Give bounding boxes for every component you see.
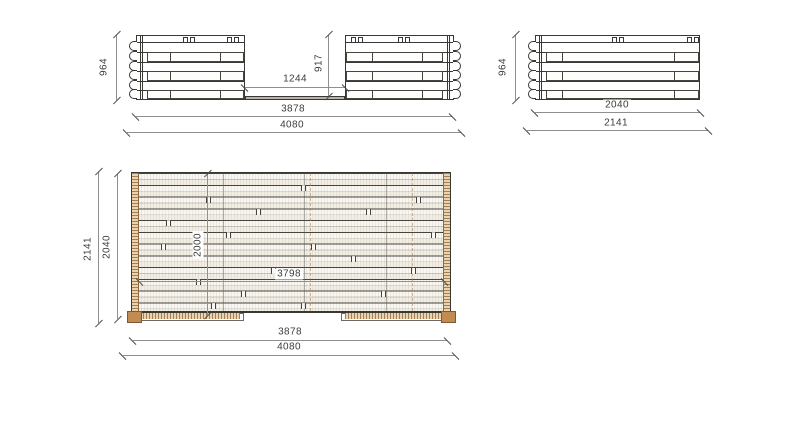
log-course-line	[346, 81, 453, 82]
log-end-scallop	[453, 51, 461, 61]
log-course-line	[137, 62, 244, 63]
rafter-dashed-line	[310, 173, 311, 311]
corner-post-line	[539, 36, 542, 99]
panel-joint-line	[220, 72, 221, 80]
board-stagger-joint	[241, 291, 246, 297]
dimension-line-shell-depth	[535, 112, 700, 113]
board-stagger-joint	[411, 268, 416, 274]
dimension-label: 4080	[275, 342, 303, 353]
log-panel	[546, 90, 699, 99]
top-notch	[227, 37, 232, 43]
top-notch	[183, 37, 188, 43]
dimension-line-inner-width	[140, 281, 444, 282]
panel-joint-line	[220, 91, 221, 98]
roof-boards	[138, 173, 444, 311]
technical-drawing-canvas: 964 917 1244 3878 4080	[0, 0, 794, 446]
log-course-line	[346, 62, 453, 63]
log-panel	[346, 52, 443, 62]
board-stagger-joint	[351, 256, 356, 262]
log-end-scallop	[528, 70, 536, 80]
log-end-scallop	[453, 89, 461, 99]
log-end-scallop	[528, 89, 536, 99]
corner-log-block-right	[441, 311, 456, 323]
panel-joint-line	[372, 72, 373, 80]
log-course-line	[536, 81, 699, 82]
board-stagger-joint	[301, 185, 306, 191]
plan-outline	[131, 172, 451, 313]
panel-joint-line	[674, 72, 675, 80]
dimension-line-height	[116, 35, 117, 100]
log-panel	[546, 71, 699, 81]
rafter-dashed-line	[412, 173, 413, 311]
log-panel	[147, 52, 244, 62]
panel-joint-line	[372, 91, 373, 98]
door-opening-sill	[245, 96, 345, 100]
panel-joint-line	[170, 53, 171, 61]
panel-joint-line	[422, 53, 423, 61]
panel-joint-line	[372, 53, 373, 61]
log-panel	[546, 52, 699, 62]
corner-log-block-left	[127, 311, 142, 323]
panel-joint-line	[674, 53, 675, 61]
top-notch	[351, 37, 356, 43]
log-end-scallop	[129, 70, 137, 80]
panel-joint-line	[170, 91, 171, 98]
top-notch	[405, 37, 410, 43]
board-stagger-joint	[311, 244, 316, 250]
dimension-line-height	[515, 35, 516, 100]
top-notch	[398, 37, 403, 43]
board-stagger-joint	[301, 303, 306, 309]
dimension-line-overall-width	[127, 132, 461, 133]
front-left-wall	[136, 35, 245, 100]
dimension-line-overall-depth	[98, 172, 99, 323]
board-stagger-joint	[381, 291, 386, 297]
dimension-line-overall-width	[123, 355, 455, 356]
board-stagger-joint	[366, 209, 371, 215]
board-stagger-joint	[196, 279, 201, 285]
log-end-scallop	[129, 89, 137, 99]
dimension-label: 2141	[602, 118, 630, 129]
panel-joint-line	[562, 53, 563, 61]
dimension-label: 964	[498, 56, 509, 78]
panel-joint-line	[170, 72, 171, 80]
board-joint-line	[304, 173, 305, 311]
board-stagger-joint	[166, 220, 171, 226]
dimension-label: 2040	[102, 233, 113, 261]
dimension-line-shell-width	[136, 116, 452, 117]
dimension-label: 2040	[603, 100, 631, 111]
log-end-scallop	[453, 70, 461, 80]
log-end-scallop	[129, 51, 137, 61]
top-cap-line	[536, 42, 699, 43]
board-stagger-joint	[256, 209, 261, 215]
front-right-wall	[345, 35, 454, 100]
panel-joint-line	[562, 91, 563, 98]
dimension-line-overall-depth	[527, 130, 708, 131]
log-wall-strip-left	[132, 173, 139, 311]
panel-joint-line	[562, 72, 563, 80]
front-wall-strip-right	[345, 313, 449, 319]
panel-joint-line	[220, 53, 221, 61]
log-course-line	[137, 81, 244, 82]
corner-post-line	[447, 36, 450, 99]
log-end-scallop	[528, 41, 536, 51]
corner-post-line	[140, 36, 143, 99]
board-stagger-joint	[211, 303, 216, 309]
top-notch	[190, 37, 195, 43]
board-joint-line	[223, 173, 224, 311]
panel-joint-line	[422, 91, 423, 98]
top-notch	[619, 37, 624, 43]
log-panel	[147, 71, 244, 81]
panel-joint-line	[674, 91, 675, 98]
dimension-label: 3878	[279, 104, 307, 115]
top-notch	[234, 37, 239, 43]
front-wall-strip-left	[137, 313, 240, 319]
board-stagger-joint	[416, 197, 421, 203]
top-notch	[694, 37, 699, 43]
side-wall	[535, 35, 700, 100]
log-course-line	[536, 62, 699, 63]
top-notch	[358, 37, 363, 43]
panel-joint-line	[422, 72, 423, 80]
dimension-label: 964	[99, 56, 110, 78]
dimension-line-opening-width	[245, 87, 345, 88]
dimension-label: 4080	[278, 120, 306, 131]
dimension-line-shell-depth	[117, 174, 118, 319]
dimension-label: 2000	[193, 231, 204, 259]
dimension-label: 3878	[276, 327, 304, 338]
log-wall-strip-right	[443, 173, 450, 311]
log-end-scallop	[453, 41, 461, 51]
board-stagger-joint	[161, 244, 166, 250]
dimension-line-inner-depth	[207, 174, 208, 315]
log-end-scallop	[129, 41, 137, 51]
log-panel	[147, 90, 244, 99]
board-joint-line	[386, 173, 387, 311]
board-stagger-joint	[226, 232, 231, 238]
dimension-label: 3798	[275, 269, 303, 280]
top-notch	[612, 37, 617, 43]
log-panel	[346, 71, 443, 81]
board-stagger-joint	[431, 232, 436, 238]
log-end-scallop	[528, 51, 536, 61]
dimension-label: 2141	[83, 235, 94, 263]
top-notch	[687, 37, 692, 43]
log-panel	[346, 90, 443, 99]
dimension-label: 1244	[281, 74, 309, 85]
dimension-label: 917	[314, 52, 325, 74]
